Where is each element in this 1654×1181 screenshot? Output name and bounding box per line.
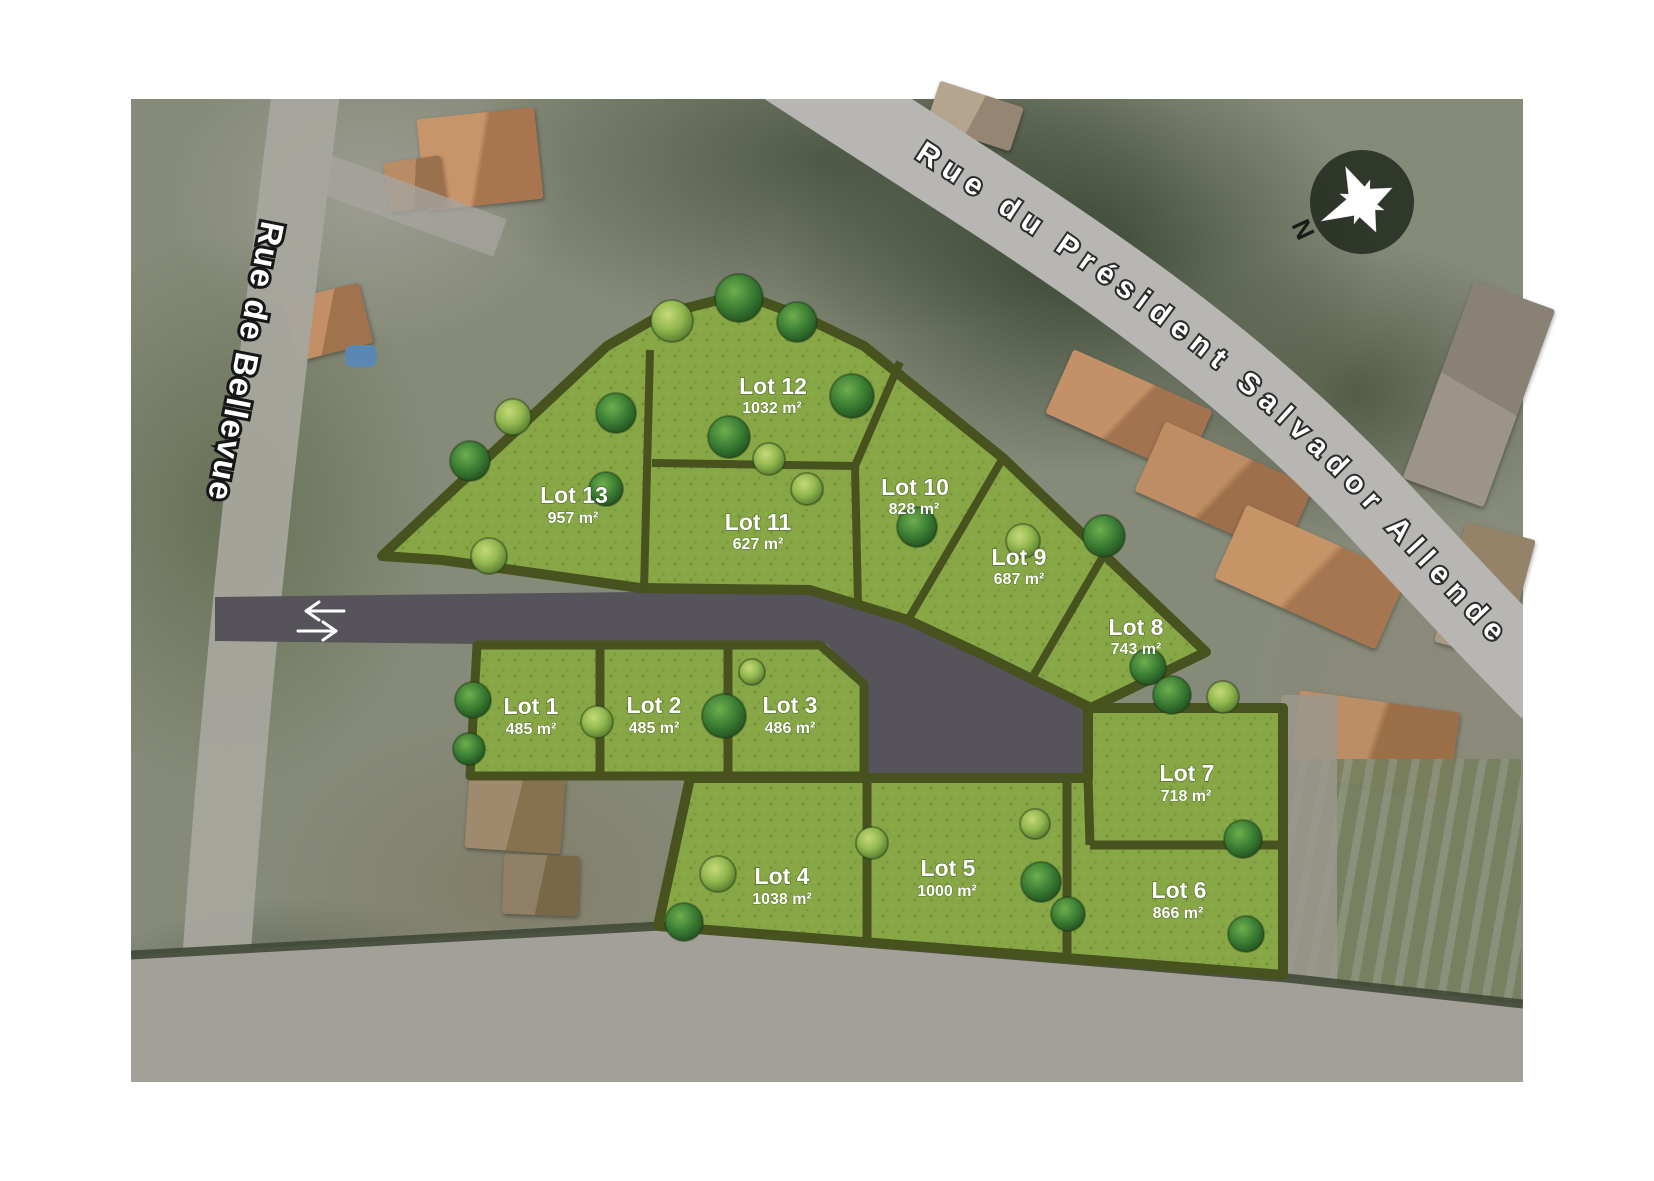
tree-icon xyxy=(450,441,490,481)
tree-icon xyxy=(739,659,765,685)
tree-icon xyxy=(455,682,491,718)
lot-11-name: Lot 11 xyxy=(725,509,792,535)
lot-5-name: Lot 5 xyxy=(921,855,976,881)
tree-icon xyxy=(753,443,785,475)
tree-icon xyxy=(596,393,636,433)
tree-icon xyxy=(495,399,531,435)
tree-icon xyxy=(1083,515,1125,557)
lot-3-area: 486 m² xyxy=(765,720,816,737)
lot-7-area: 718 m² xyxy=(1161,788,1212,805)
lot-2-name: Lot 2 xyxy=(627,692,682,718)
tree-icon xyxy=(453,733,485,765)
tree-icon xyxy=(830,374,874,418)
tree-icon xyxy=(791,473,823,505)
tree-icon xyxy=(1020,809,1050,839)
tree-icon xyxy=(1207,681,1239,713)
lot-9-area: 687 m² xyxy=(994,571,1045,588)
tree-icon xyxy=(665,903,703,941)
hedge-lot11-right xyxy=(855,466,858,604)
tree-icon xyxy=(856,827,888,859)
tree-icon xyxy=(700,856,736,892)
lot-11-area: 627 m² xyxy=(733,536,784,553)
lot-13-area: 957 m² xyxy=(548,510,599,527)
tree-icon xyxy=(777,302,817,342)
lot-8-area: 743 m² xyxy=(1111,641,1162,658)
compass-rose-icon: N xyxy=(1273,150,1414,267)
lot-12-name: Lot 12 xyxy=(739,373,807,399)
tree-icon xyxy=(1051,897,1085,931)
lot-9-name: Lot 9 xyxy=(992,544,1047,570)
lot-12-area: 1032 m² xyxy=(742,400,802,417)
lot-10-name: Lot 10 xyxy=(881,474,949,500)
lot-6-area: 866 m² xyxy=(1153,905,1204,922)
street-branch-band xyxy=(300,165,500,238)
lot-5-area: 1000 m² xyxy=(917,883,977,900)
tree-icon xyxy=(1224,820,1262,858)
site-plan-overlay: Lot 1 485 m² Lot 2 485 m² Lot 3 486 m² L… xyxy=(0,0,1654,1181)
bottom-road-band xyxy=(131,926,1523,1082)
tree-icon xyxy=(702,694,746,738)
lotissement-plan-page: Lot 1 485 m² Lot 2 485 m² Lot 3 486 m² L… xyxy=(0,0,1654,1181)
lot-4-area: 1038 m² xyxy=(752,891,812,908)
tree-icon xyxy=(708,416,750,458)
tree-icon xyxy=(715,274,763,322)
tree-icon xyxy=(1153,676,1191,714)
lot-1-area: 485 m² xyxy=(506,721,557,738)
tree-icon xyxy=(1228,916,1264,952)
lot-10-area: 828 m² xyxy=(889,501,940,518)
tree-icon xyxy=(471,538,507,574)
lot-13-name: Lot 13 xyxy=(540,482,608,508)
tree-icon xyxy=(651,300,693,342)
lot-4-name: Lot 4 xyxy=(755,863,810,889)
lot-1-name: Lot 1 xyxy=(504,693,559,719)
lot-8-name: Lot 8 xyxy=(1109,614,1164,640)
lot-3-name: Lot 3 xyxy=(763,692,818,718)
lot-7-name: Lot 7 xyxy=(1160,760,1215,786)
lot-6-name: Lot 6 xyxy=(1152,877,1207,903)
lot-2-area: 485 m² xyxy=(629,720,680,737)
hedge-lot7-left xyxy=(1088,778,1090,845)
tree-icon xyxy=(581,706,613,738)
tree-icon xyxy=(1021,862,1061,902)
